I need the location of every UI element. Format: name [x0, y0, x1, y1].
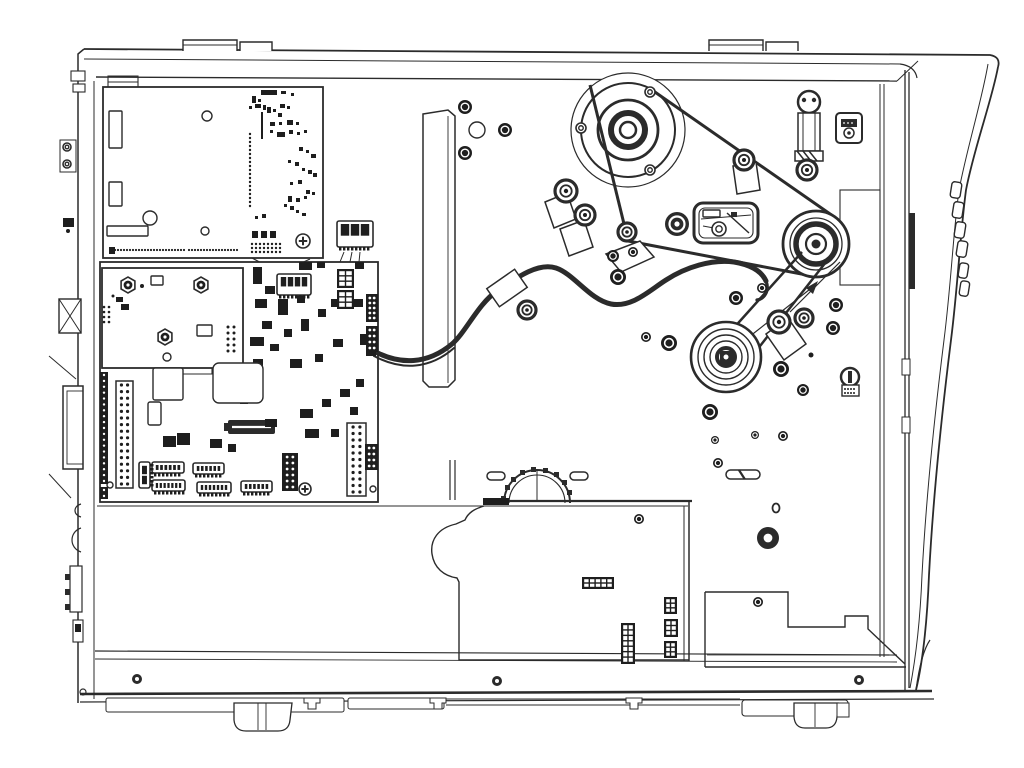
solder-pad — [103, 306, 106, 309]
rear-port-large — [63, 386, 83, 469]
solder-pad — [249, 145, 251, 147]
platen-drive-pulley — [783, 211, 849, 277]
solder-pad — [159, 249, 161, 251]
solder-pad — [209, 249, 211, 251]
solder-pad — [227, 350, 230, 353]
smd-pad — [296, 210, 299, 213]
grid-connector — [664, 619, 678, 637]
ic-chip — [350, 407, 358, 415]
smd-pad — [267, 107, 271, 113]
smd-pad — [261, 231, 267, 238]
grid-connector — [582, 577, 614, 589]
grid-connector — [664, 597, 677, 614]
solder-pad — [249, 165, 251, 167]
solder-pad — [271, 247, 273, 249]
bearing — [618, 223, 636, 241]
diagram-stage: Printer internal mechanism - technical l… — [0, 0, 1024, 768]
ic-chip — [116, 297, 123, 302]
screw-donut — [856, 677, 863, 684]
ic-chip — [121, 304, 129, 310]
smd-pad — [298, 180, 302, 184]
solder-pad — [171, 249, 173, 251]
solder-pad — [259, 251, 261, 253]
screw-dark — [607, 250, 619, 262]
bezel-button — [956, 240, 968, 257]
solder-pad — [255, 247, 257, 249]
ic-chip — [278, 299, 288, 315]
solder-pad — [233, 249, 235, 251]
screw-dot — [809, 353, 814, 358]
solder-pad — [206, 249, 208, 251]
solder-pad — [215, 249, 217, 251]
smd-pad — [258, 99, 261, 102]
solder-pad — [236, 249, 238, 251]
smd-pad — [290, 182, 293, 185]
solder-pad — [259, 243, 261, 245]
solder-pad — [850, 388, 852, 390]
solder-pad — [227, 326, 230, 329]
solder-pad — [271, 243, 273, 245]
ic-chip — [262, 321, 272, 329]
screw-dark — [458, 146, 472, 160]
pin-header — [100, 372, 108, 484]
ic-chip — [265, 286, 275, 294]
ic-chip — [322, 399, 331, 407]
smd-pad — [311, 154, 316, 158]
smd-pad — [261, 112, 263, 139]
screw-ring — [645, 165, 655, 175]
ic-chip — [301, 319, 309, 331]
solder-pad — [249, 169, 251, 171]
solder-pad — [847, 388, 849, 390]
solder-pad — [135, 249, 137, 251]
smd-pad — [297, 132, 300, 135]
solder-pad — [271, 251, 273, 253]
component-outline — [703, 210, 720, 217]
solder-pad — [249, 189, 251, 191]
screw-dark — [826, 321, 840, 335]
smd-pad — [289, 130, 293, 134]
component-outline — [148, 402, 161, 425]
screw-donut — [760, 530, 775, 545]
ic-chip — [163, 436, 176, 447]
screw-dot — [112, 295, 115, 298]
solder-pad — [249, 137, 251, 139]
solder-pad — [144, 249, 146, 251]
smd-pad — [308, 170, 312, 174]
bearing — [555, 180, 577, 202]
component-outline — [151, 276, 163, 285]
solder-pad — [212, 249, 214, 251]
solder-pad — [141, 249, 143, 251]
smd-pad — [278, 113, 282, 117]
solder-pad — [174, 249, 176, 251]
slot-capsule — [726, 470, 760, 479]
ic-chip — [483, 498, 509, 505]
solder-pad — [249, 157, 251, 159]
screw-dark — [610, 269, 626, 285]
solder-pad — [177, 249, 179, 251]
solder-pad — [180, 249, 182, 251]
screw-dark — [702, 404, 718, 420]
smd-pad — [302, 213, 306, 216]
solder-pad — [249, 181, 251, 183]
solder-pad — [249, 161, 251, 163]
smd-pad — [296, 122, 299, 125]
solder-pad — [117, 249, 119, 251]
drive-motor-pulley — [571, 73, 685, 187]
pin-header — [366, 294, 378, 322]
solder-pad — [114, 249, 116, 251]
solder-pad — [275, 243, 277, 245]
smd-pad — [295, 162, 299, 166]
solder-pad — [103, 321, 106, 324]
solder-pad — [168, 249, 170, 251]
solder-pad — [263, 247, 265, 249]
smd-pad — [304, 130, 307, 133]
screw-ring — [645, 87, 655, 97]
smd-pad — [273, 109, 276, 112]
solder-pad — [850, 392, 852, 394]
bezel-button — [958, 262, 969, 278]
screw-dark — [661, 335, 677, 351]
solder-pad — [249, 149, 251, 151]
solder-pad — [263, 251, 265, 253]
solder-pad — [197, 249, 199, 251]
screw-dark — [729, 291, 743, 305]
solder-pad — [227, 332, 230, 335]
solder-pad — [150, 249, 152, 251]
ic-chip — [300, 409, 313, 418]
solder-pad — [233, 332, 236, 335]
solder-pad — [162, 249, 164, 251]
grid-connector — [337, 290, 354, 309]
solder-pad — [203, 249, 205, 251]
solder-pad — [249, 205, 251, 207]
grid-connector — [621, 623, 635, 664]
bezel-button — [954, 221, 966, 238]
solder-pad — [233, 326, 236, 329]
ic-chip — [250, 337, 264, 346]
solder-pad — [853, 392, 855, 394]
ic-chip — [284, 329, 292, 337]
solder-pad — [279, 251, 281, 253]
solder-pad — [233, 344, 236, 347]
ic-chip — [253, 267, 262, 284]
solder-pad — [255, 251, 257, 253]
solder-pad — [165, 249, 167, 251]
solder-pad — [249, 193, 251, 195]
damper-spring — [795, 91, 823, 161]
adjuster-block — [836, 113, 862, 143]
ic-chip — [177, 433, 190, 445]
solder-pad — [251, 247, 253, 249]
grid-connector — [337, 269, 354, 288]
smd-pad — [306, 150, 309, 153]
solder-pad — [233, 350, 236, 353]
component-outline — [213, 363, 263, 403]
screw-dark — [829, 298, 843, 312]
solder-pad — [263, 243, 265, 245]
solder-pad — [224, 249, 226, 251]
screw-ring — [712, 222, 726, 236]
screw-dark — [751, 431, 759, 439]
component-outline — [153, 368, 183, 400]
solder-pad — [275, 251, 277, 253]
solder-pad — [153, 249, 155, 251]
solder-pad — [108, 306, 111, 309]
smd-pad — [287, 120, 293, 125]
screw-dark — [628, 247, 638, 257]
smd-pad — [252, 231, 258, 238]
screw-dark — [713, 458, 723, 468]
smd-pad — [270, 231, 276, 238]
smd-pad — [299, 147, 303, 151]
screw-hole — [163, 353, 171, 361]
solder-pad — [249, 201, 251, 203]
screw-donut — [134, 676, 141, 683]
solder-pad — [230, 249, 232, 251]
bezel-button — [959, 280, 970, 296]
keyhole-bracket — [841, 368, 859, 396]
screw-donut — [494, 678, 501, 685]
ic-chip — [315, 354, 323, 362]
ic-chip — [210, 439, 222, 448]
bearing — [768, 311, 790, 333]
solder-pad — [227, 338, 230, 341]
ribbon-drive-pulley — [691, 322, 761, 392]
rear-port-small — [59, 299, 81, 333]
solder-pad — [249, 133, 251, 135]
solder-pad — [188, 249, 190, 251]
solder-pad — [103, 311, 106, 314]
ic-chip — [270, 344, 279, 351]
screw-ring — [576, 123, 586, 133]
smd-pad — [249, 106, 252, 109]
component-outline — [197, 325, 212, 336]
solder-pad — [249, 197, 251, 199]
pin-header — [347, 423, 366, 496]
guide-roller — [665, 212, 689, 236]
ic-chip — [63, 218, 74, 227]
screw-dot — [140, 284, 144, 288]
screw-dark — [498, 123, 512, 137]
screw-hole — [143, 211, 157, 225]
slot-capsule — [570, 472, 588, 480]
solder-pad — [279, 247, 281, 249]
ic-chip — [318, 309, 326, 317]
ic-chip — [228, 444, 236, 452]
solder-pad — [103, 316, 106, 319]
ic-chip — [355, 262, 364, 269]
solder-pad — [233, 338, 236, 341]
solder-pad — [191, 249, 193, 251]
solder-pad — [249, 141, 251, 143]
screw-dark — [757, 283, 767, 293]
solder-pad — [227, 344, 230, 347]
pin-header — [365, 444, 378, 470]
ic-chip — [331, 429, 339, 437]
screw-hole — [469, 122, 485, 138]
component-outline — [109, 111, 122, 148]
screw-hole — [202, 111, 212, 121]
solder-pad — [108, 311, 111, 314]
smd-pad — [270, 122, 275, 126]
solder-pad — [183, 249, 185, 251]
hex-standoff — [121, 277, 135, 293]
solder-pad — [156, 249, 158, 251]
solder-pad — [218, 249, 220, 251]
solder-pad — [123, 249, 125, 251]
wire-connector — [337, 221, 373, 251]
solder-pad — [227, 249, 229, 251]
solder-pad — [138, 249, 140, 251]
smd-pad — [288, 196, 292, 202]
solder-pad — [255, 243, 257, 245]
solder-pad — [267, 251, 269, 253]
smd-pad — [262, 214, 266, 218]
smd-pad — [255, 216, 258, 219]
smd-pad — [277, 132, 285, 137]
solder-pad — [108, 321, 111, 324]
smd-pad — [313, 173, 317, 177]
screw-dark — [641, 332, 651, 342]
grid-connector — [664, 641, 677, 658]
component-outline — [107, 226, 148, 236]
ic-chip — [305, 429, 319, 438]
solder-pad — [844, 392, 846, 394]
solder-pad — [279, 243, 281, 245]
ic-chip — [356, 379, 364, 387]
screw-phil — [296, 234, 310, 248]
ic-chip — [340, 389, 350, 397]
solder-pad — [267, 243, 269, 245]
screw-dark — [773, 361, 789, 377]
solder-pad — [132, 249, 134, 251]
screw-dark — [753, 597, 763, 607]
foot-left — [234, 703, 292, 731]
ic-chip — [333, 339, 343, 347]
solder-pad — [249, 177, 251, 179]
bezel-button — [952, 201, 964, 218]
solder-pad — [194, 249, 196, 251]
solder-pad — [847, 392, 849, 394]
ic-chip — [75, 624, 81, 632]
solder-pad — [249, 185, 251, 187]
solder-pad — [853, 388, 855, 390]
smd-pad — [287, 106, 290, 109]
smd-pad — [263, 105, 266, 110]
ic-chip — [255, 299, 267, 308]
pin-header — [100, 487, 108, 499]
ic-chip — [265, 419, 277, 427]
solder-pad — [129, 249, 131, 251]
pin-header — [282, 453, 298, 491]
smd-pad — [304, 196, 307, 199]
solder-pad — [120, 249, 122, 251]
solder-pad — [249, 153, 251, 155]
solder-pad — [249, 173, 251, 175]
smd-pad — [296, 198, 300, 202]
slot-capsule — [487, 472, 505, 480]
smd-pad — [302, 168, 305, 171]
smd-pad — [270, 130, 273, 133]
foot-right — [794, 703, 838, 728]
pin-header — [366, 326, 378, 352]
screw-hole — [370, 486, 376, 492]
solder-pad — [267, 247, 269, 249]
solder-pad — [251, 243, 253, 245]
smd-pad — [252, 96, 256, 103]
screw-ring — [63, 160, 71, 168]
smd-pad — [261, 90, 277, 95]
power-supply-board — [103, 87, 323, 273]
screw-phil — [299, 483, 311, 495]
solder-pad — [251, 251, 253, 253]
printer-internals-diagram: Printer internal mechanism - technical l… — [0, 0, 1024, 768]
solder-pad — [108, 316, 111, 319]
screw-dark — [797, 384, 809, 396]
component-outline — [109, 182, 122, 206]
ic-chip — [317, 262, 325, 268]
screw-hole — [201, 227, 209, 235]
screw-dot — [66, 229, 70, 233]
bearing — [518, 301, 536, 319]
bearing — [797, 160, 817, 180]
bearing — [575, 205, 595, 225]
smd-pad — [281, 91, 286, 94]
screw-ring — [63, 143, 71, 151]
screw-dark — [458, 100, 472, 114]
pin-header — [116, 381, 133, 488]
solder-pad — [275, 247, 277, 249]
smd-pad — [279, 122, 282, 125]
smd-pad — [306, 190, 310, 194]
ic-chip — [290, 359, 302, 368]
wire-connector — [277, 274, 311, 299]
bearing — [734, 150, 754, 170]
bearing — [795, 309, 813, 327]
solder-pad — [147, 249, 149, 251]
smd-pad — [280, 104, 285, 108]
sensor-block — [694, 203, 758, 243]
hex-standoff — [194, 277, 208, 293]
smd-pad — [284, 204, 287, 207]
smd-pad — [255, 104, 261, 108]
screw-dark — [634, 514, 644, 524]
smd-pad — [288, 160, 291, 163]
smd-pad — [291, 93, 294, 96]
smd-pad — [290, 206, 294, 210]
solder-pad — [221, 249, 223, 251]
solder-pad — [126, 249, 128, 251]
hex-standoff — [158, 329, 172, 345]
solder-pad — [259, 247, 261, 249]
solder-pad — [111, 249, 113, 251]
screw-dark — [711, 436, 719, 444]
screw-dark — [778, 431, 788, 441]
ic-chip — [299, 262, 312, 270]
solder-pad — [844, 388, 846, 390]
smd-pad — [312, 192, 315, 195]
bezel-button — [950, 181, 962, 198]
solder-pad — [200, 249, 202, 251]
